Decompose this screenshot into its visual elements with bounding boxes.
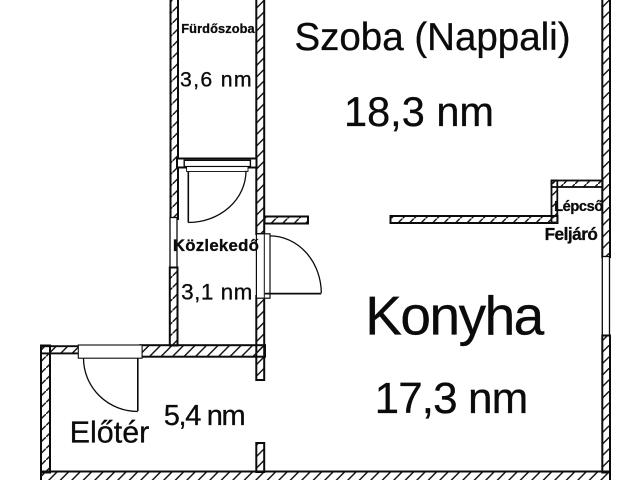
svg-text:Feljáró: Feljáró [545,224,598,244]
svg-text:5,4 nm: 5,4 nm [164,400,245,432]
svg-text:Közlekedő: Közlekedő [173,236,259,255]
svg-text:3,6 nm: 3,6 nm [180,68,253,92]
svg-text:17,3 nm: 17,3 nm [375,374,528,423]
svg-text:Fürdőszoba: Fürdőszoba [181,21,255,36]
svg-text:18,3 nm: 18,3 nm [344,88,494,135]
svg-text:Lépcső: Lépcső [554,199,603,215]
svg-text:Szoba (Nappali): Szoba (Nappali) [294,16,570,59]
svg-text:Előtér: Előtér [70,416,150,450]
svg-text:3,1 nm: 3,1 nm [181,280,253,305]
svg-text:Konyha: Konyha [365,285,544,347]
